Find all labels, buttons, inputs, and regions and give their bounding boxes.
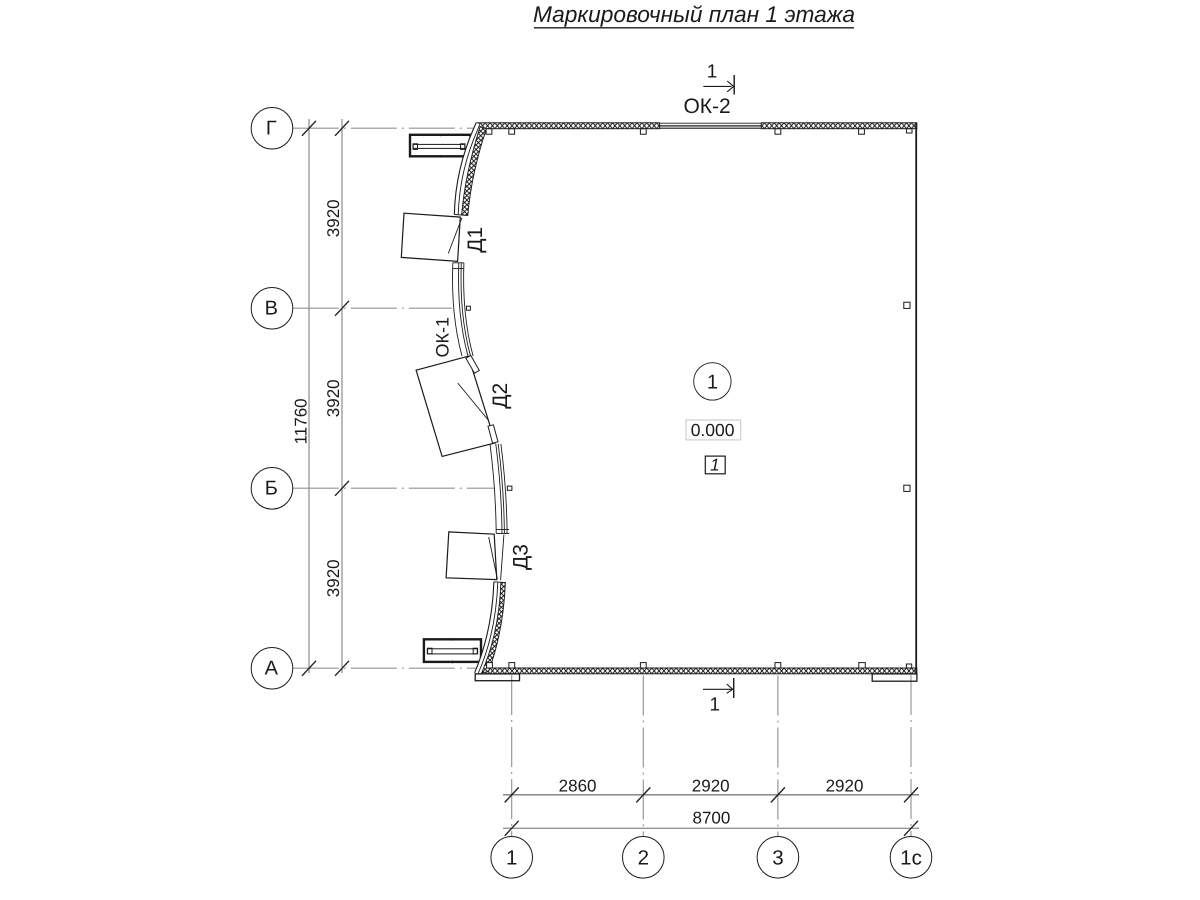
svg-text:ОК-2: ОК-2 xyxy=(683,95,730,118)
svg-text:А: А xyxy=(265,658,279,680)
svg-text:ОК-1: ОК-1 xyxy=(433,317,453,358)
svg-text:1: 1 xyxy=(506,847,517,870)
svg-text:Д2: Д2 xyxy=(489,383,512,409)
svg-text:3920: 3920 xyxy=(324,379,343,417)
svg-text:2920: 2920 xyxy=(826,776,864,795)
svg-text:1: 1 xyxy=(707,62,718,83)
svg-text:2860: 2860 xyxy=(559,776,597,795)
svg-text:1: 1 xyxy=(710,456,719,475)
svg-text:Маркировочный план 1 этажа: Маркировочный план 1 этажа xyxy=(533,1,855,27)
svg-text:8700: 8700 xyxy=(692,808,730,827)
svg-text:11760: 11760 xyxy=(292,398,311,444)
svg-text:3920: 3920 xyxy=(324,199,343,237)
svg-text:1: 1 xyxy=(710,695,721,716)
svg-text:2920: 2920 xyxy=(692,776,730,795)
svg-text:2: 2 xyxy=(638,847,649,870)
svg-text:1: 1 xyxy=(707,372,718,394)
svg-text:3: 3 xyxy=(772,847,783,870)
svg-text:0.000: 0.000 xyxy=(691,420,735,440)
svg-text:Б: Б xyxy=(265,478,278,500)
svg-text:Д1: Д1 xyxy=(464,227,487,253)
svg-text:Д3: Д3 xyxy=(510,544,533,570)
svg-text:Г: Г xyxy=(266,118,277,140)
svg-text:3920: 3920 xyxy=(324,559,343,597)
svg-text:В: В xyxy=(265,298,278,320)
svg-text:1с: 1с xyxy=(900,847,922,870)
